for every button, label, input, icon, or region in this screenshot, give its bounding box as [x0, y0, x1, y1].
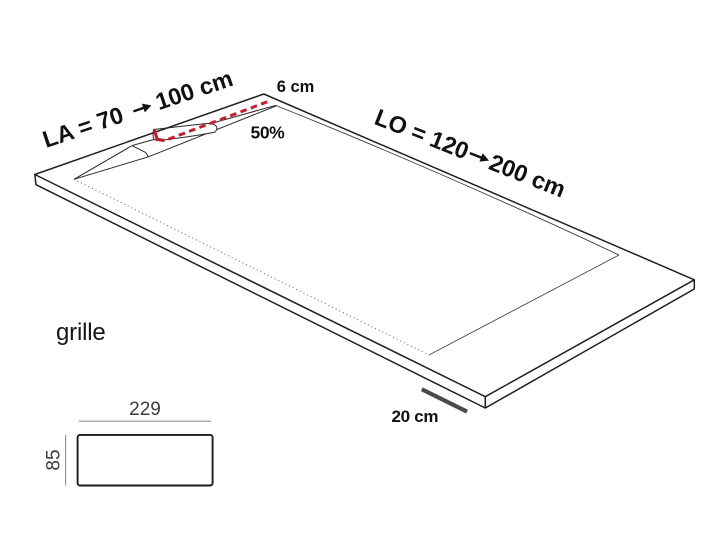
svg-text:229: 229: [129, 399, 161, 420]
svg-text:LO = 120: LO = 120: [371, 104, 472, 164]
svg-text:85: 85: [44, 449, 65, 470]
svg-text:20 cm: 20 cm: [392, 407, 439, 426]
svg-text:50%: 50%: [251, 123, 286, 143]
svg-text:LA = 70: LA = 70: [39, 102, 126, 153]
svg-text:grille: grille: [56, 319, 105, 346]
svg-text:6 cm: 6 cm: [277, 78, 315, 96]
